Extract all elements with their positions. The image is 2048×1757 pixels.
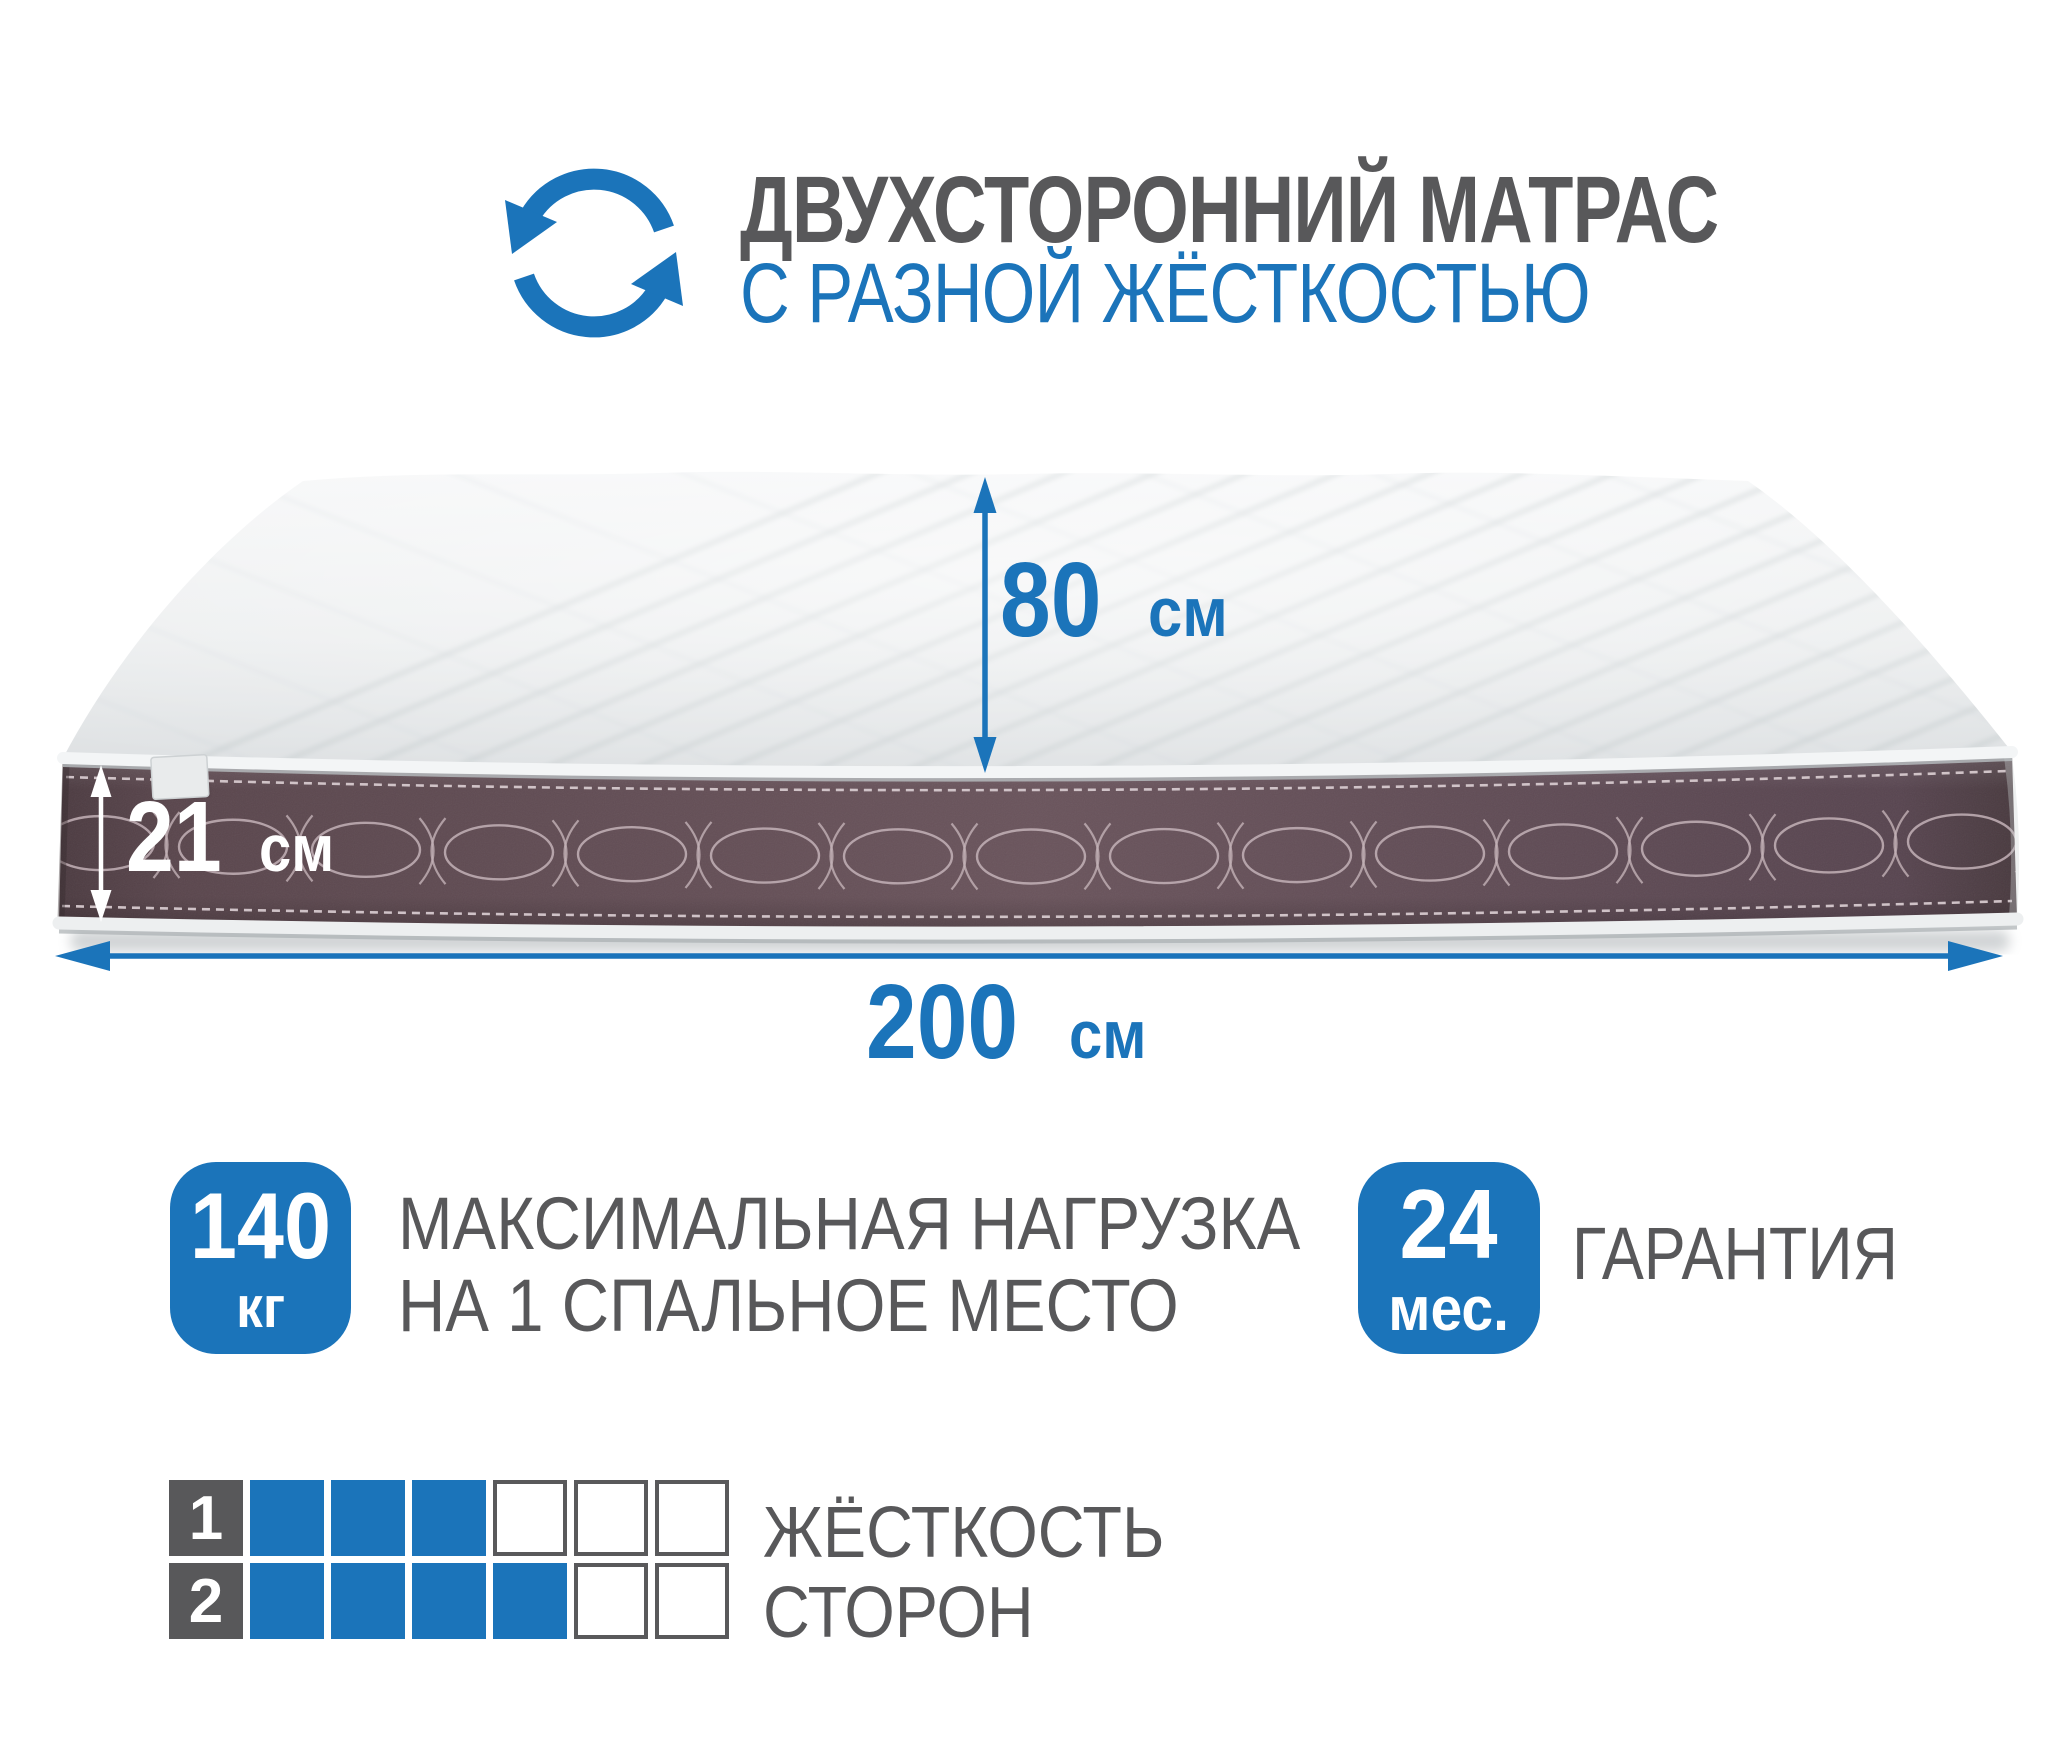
firmness-label-line2: СТОРОН [763,1573,1164,1653]
length-value: 200 [866,969,1018,1075]
firmness-cell-empty [493,1480,567,1556]
thickness-dimension-label: 21см [126,787,345,887]
page-title: ДВУХСТОРОННИЙ МАТРАС [740,163,1718,258]
firmness-row-number: 1 [169,1480,243,1556]
max-load-label-line1: МАКСИМАЛЬНАЯ НАГРУЗКА [398,1183,1300,1265]
firmness-cell-filled [412,1480,486,1556]
firmness-label-line1: ЖЁСТКОСТЬ [763,1493,1164,1573]
rotate-arrows-icon [505,179,683,327]
firmness-cell-filled [331,1563,405,1639]
max-load-badge: 140 кг [170,1162,351,1354]
firmness-cell-filled [250,1480,324,1556]
page-subtitle: С РАЗНОЙ ЖЁСТКОСТЬЮ [740,251,1590,335]
firmness-cell-empty [655,1480,729,1556]
firmness-cell-empty [574,1480,648,1556]
firmness-row-1: 1 [169,1480,729,1556]
firmness-row-number: 2 [169,1563,243,1639]
firmness-cell-filled [493,1563,567,1639]
height-value: 80 [1000,547,1101,653]
mattress-infographic: ДВУХСТОРОННИЙ МАТРАС С РАЗНОЙ ЖЁСТКОСТЬЮ… [0,0,2048,1757]
max-load-label: МАКСИМАЛЬНАЯ НАГРУЗКА НА 1 СПАЛЬНОЕ МЕСТ… [398,1183,1300,1347]
firmness-cell-filled [250,1563,324,1639]
max-load-label-line2: НА 1 СПАЛЬНОЕ МЕСТО [398,1265,1300,1347]
firmness-row-2: 2 [169,1563,729,1639]
warranty-badge: 24 мес. [1358,1162,1540,1354]
firmness-cell-filled [412,1563,486,1639]
firmness-cell-empty [574,1563,648,1639]
thickness-value: 21 [126,787,222,887]
height-unit: см [1148,577,1228,647]
thickness-unit: см [259,815,334,881]
warranty-unit: мес. [1389,1279,1510,1341]
firmness-cell-filled [331,1480,405,1556]
max-load-value: 140 [190,1179,331,1273]
warranty-label: ГАРАНТИЯ [1572,1217,1898,1291]
length-unit: см [1069,1001,1147,1069]
warranty-value: 24 [1400,1175,1498,1273]
height-dimension-label: 80см [1000,547,1239,653]
band-left-edge-shade [61,763,66,920]
max-load-unit: кг [236,1279,285,1337]
length-dimension-label: 200см [866,969,1157,1075]
firmness-label: ЖЁСТКОСТЬ СТОРОН [763,1493,1164,1653]
firmness-cell-empty [655,1563,729,1639]
